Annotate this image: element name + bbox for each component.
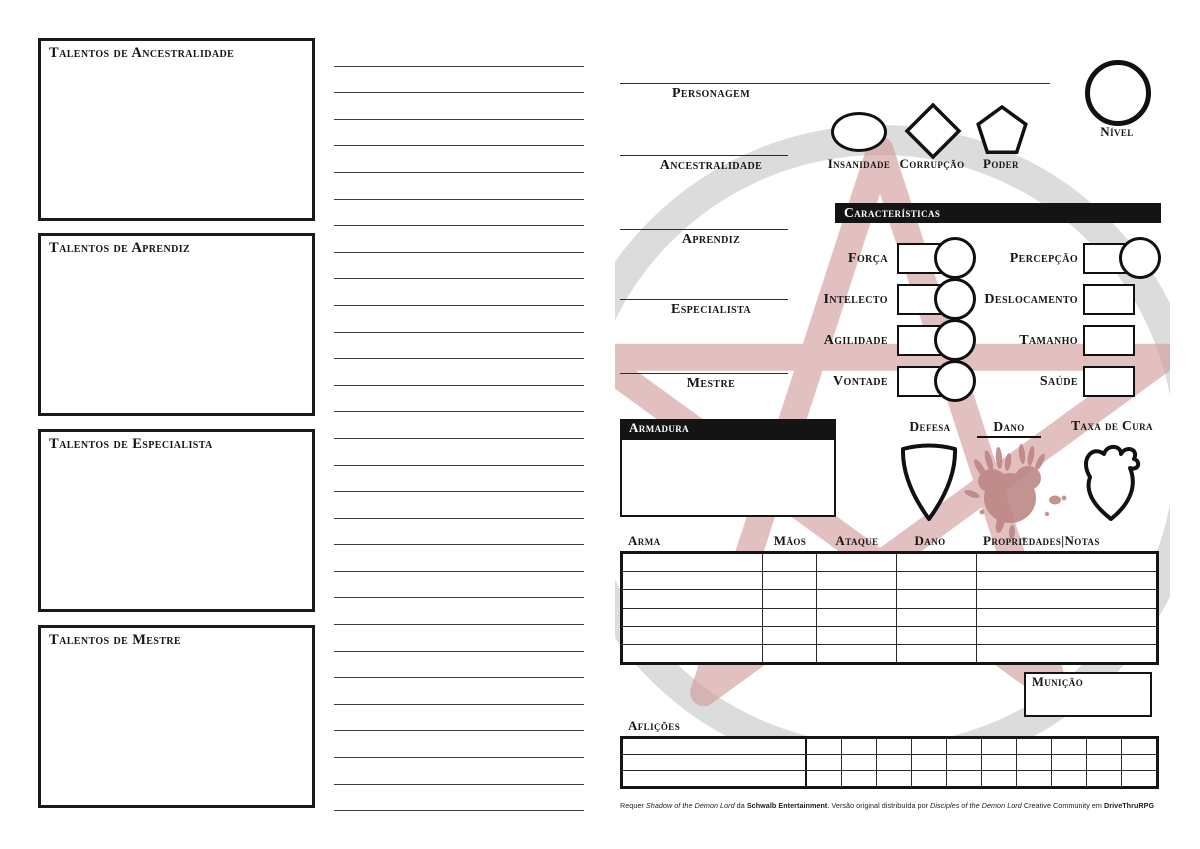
especialista-field-line[interactable] bbox=[620, 299, 788, 300]
aflicao-check-cell[interactable] bbox=[1122, 771, 1156, 786]
blood-splatter-image bbox=[952, 436, 1072, 546]
talentos-ancestralidade-box[interactable]: Talentos de Ancestralidade bbox=[38, 38, 315, 221]
note-line[interactable] bbox=[334, 40, 584, 67]
aflicao-check-cell[interactable] bbox=[1087, 771, 1122, 786]
personagem-field-line[interactable] bbox=[620, 83, 1050, 84]
note-line[interactable] bbox=[334, 519, 584, 546]
weapon-name-cell[interactable] bbox=[623, 590, 763, 607]
aflicao-check-cell[interactable] bbox=[982, 739, 1017, 754]
poder-field[interactable] bbox=[974, 105, 1030, 157]
talentos-especialista-box[interactable]: Talentos de Especialista bbox=[38, 429, 315, 612]
credit-game-title: Shadow of the Demon Lord bbox=[646, 801, 735, 810]
aflicao-check-cell[interactable] bbox=[807, 755, 842, 770]
especialista-label: Especialista bbox=[623, 303, 799, 318]
weapon-hands-cell[interactable] bbox=[763, 572, 817, 589]
aflicao-check-cell[interactable] bbox=[1017, 739, 1052, 754]
weapon-damage-cell[interactable] bbox=[897, 609, 977, 626]
note-line[interactable] bbox=[334, 120, 584, 147]
aflicao-check-cell[interactable] bbox=[877, 739, 912, 754]
weapon-row bbox=[623, 590, 1156, 608]
note-line[interactable] bbox=[334, 678, 584, 705]
intelecto-modifier-circle[interactable] bbox=[934, 278, 976, 320]
note-line[interactable] bbox=[334, 93, 584, 120]
note-line[interactable] bbox=[334, 492, 584, 519]
armadura-label: Armadura bbox=[620, 419, 836, 436]
note-line[interactable] bbox=[334, 439, 584, 466]
agilidade-label: Agilidade bbox=[766, 325, 888, 356]
note-line[interactable] bbox=[334, 731, 584, 758]
aflicao-name-cell[interactable] bbox=[623, 771, 807, 786]
aflicao-row bbox=[623, 755, 1156, 771]
note-line[interactable] bbox=[334, 146, 584, 173]
aflicao-check-cell[interactable] bbox=[1122, 755, 1156, 770]
weapons-table bbox=[620, 551, 1159, 665]
aflicao-check-cell[interactable] bbox=[947, 771, 982, 786]
weapon-hands-cell[interactable] bbox=[763, 645, 817, 662]
aflicao-check-cell[interactable] bbox=[912, 739, 947, 754]
weapon-name-cell[interactable] bbox=[623, 572, 763, 589]
note-line[interactable] bbox=[334, 386, 584, 413]
note-line[interactable] bbox=[334, 572, 584, 599]
aflicao-check-cell[interactable] bbox=[947, 739, 982, 754]
weapon-attack-cell[interactable] bbox=[817, 645, 897, 662]
weapon-damage-cell[interactable] bbox=[897, 590, 977, 607]
weapon-properties-cell[interactable] bbox=[977, 609, 1156, 626]
taxa-de-cura-heart-field[interactable] bbox=[1077, 441, 1149, 525]
aflicoes-label: Aflições bbox=[628, 719, 680, 733]
weapon-row bbox=[623, 627, 1156, 645]
weapon-attack-cell[interactable] bbox=[817, 627, 897, 644]
note-line[interactable] bbox=[334, 279, 584, 306]
aflicao-name-cell[interactable] bbox=[623, 739, 807, 754]
credit-community: Disciples of the Demon Lord bbox=[930, 801, 1022, 810]
weapon-hands-cell[interactable] bbox=[763, 590, 817, 607]
aflicao-check-cell[interactable] bbox=[1087, 755, 1122, 770]
deslocamento-box[interactable] bbox=[1083, 284, 1135, 315]
weapon-properties-cell[interactable] bbox=[977, 554, 1156, 571]
mestre-label: Mestre bbox=[623, 377, 799, 392]
note-line[interactable] bbox=[334, 758, 584, 785]
weapon-name-cell[interactable] bbox=[623, 554, 763, 571]
note-line[interactable] bbox=[334, 253, 584, 280]
weapon-attack-cell[interactable] bbox=[817, 590, 897, 607]
talentos-ancestralidade-label: Talentos de Ancestralidade bbox=[41, 41, 312, 61]
aflicao-check-cell[interactable] bbox=[982, 755, 1017, 770]
weapon-properties-cell[interactable] bbox=[977, 572, 1156, 589]
note-line[interactable] bbox=[334, 359, 584, 386]
weapon-damage-cell[interactable] bbox=[897, 554, 977, 571]
weapon-attack-cell[interactable] bbox=[817, 572, 897, 589]
aflicao-check-cell[interactable] bbox=[912, 771, 947, 786]
credit-store: DriveThruRPG bbox=[1104, 801, 1154, 810]
aflicao-check-cell[interactable] bbox=[877, 771, 912, 786]
aflicao-check-cell[interactable] bbox=[1122, 739, 1156, 754]
note-line[interactable] bbox=[334, 785, 584, 812]
weapon-properties-cell[interactable] bbox=[977, 627, 1156, 644]
aflicao-check-cell[interactable] bbox=[842, 755, 877, 770]
talentos-aprendiz-box[interactable]: Talentos de Aprendiz bbox=[38, 233, 315, 416]
weapon-hands-cell[interactable] bbox=[763, 554, 817, 571]
weapon-hands-cell[interactable] bbox=[763, 627, 817, 644]
note-line[interactable] bbox=[334, 306, 584, 333]
talentos-mestre-box[interactable]: Talentos de Mestre bbox=[38, 625, 315, 808]
aflicao-check-cell[interactable] bbox=[807, 739, 842, 754]
note-line[interactable] bbox=[334, 705, 584, 732]
weapon-damage-cell[interactable] bbox=[897, 645, 977, 662]
aflicao-check-cell[interactable] bbox=[842, 739, 877, 754]
nivel-label: Nível bbox=[1072, 125, 1162, 139]
forca-modifier-circle[interactable] bbox=[934, 237, 976, 279]
weapon-name-cell[interactable] bbox=[623, 645, 763, 662]
note-line[interactable] bbox=[334, 173, 584, 200]
aflicao-check-cell[interactable] bbox=[1017, 755, 1052, 770]
percepcao-modifier-circle[interactable] bbox=[1119, 237, 1161, 279]
note-line[interactable] bbox=[334, 412, 584, 439]
armadura-header-bar: Armadura bbox=[620, 419, 836, 438]
aflicao-name-cell[interactable] bbox=[623, 755, 807, 770]
corrupcao-field[interactable] bbox=[904, 102, 962, 160]
aprendiz-field-line[interactable] bbox=[620, 229, 788, 230]
ataque-header: Ataque bbox=[822, 534, 892, 548]
defesa-label: Defesa bbox=[885, 420, 975, 434]
weapon-attack-cell[interactable] bbox=[817, 554, 897, 571]
aflicao-check-cell[interactable] bbox=[982, 771, 1017, 786]
aflicao-check-cell[interactable] bbox=[1052, 771, 1087, 786]
insanidade-field[interactable] bbox=[831, 112, 887, 152]
weapon-damage-cell[interactable] bbox=[897, 572, 977, 589]
aflicao-check-cell[interactable] bbox=[807, 771, 842, 786]
aflicao-check-cell[interactable] bbox=[877, 755, 912, 770]
personagem-label: Personagem bbox=[623, 87, 799, 102]
aflicao-check-cell[interactable] bbox=[912, 755, 947, 770]
armadura-box[interactable] bbox=[620, 438, 836, 517]
note-line[interactable] bbox=[334, 545, 584, 572]
credit-text: Requer bbox=[620, 801, 646, 810]
poder-label: Poder bbox=[956, 157, 1046, 171]
arma-header: Arma bbox=[628, 534, 660, 548]
aflicao-row bbox=[623, 771, 1156, 786]
maos-header: Mãos bbox=[760, 534, 820, 548]
saude-box[interactable] bbox=[1083, 366, 1135, 397]
weapon-row bbox=[623, 609, 1156, 627]
note-line[interactable] bbox=[334, 333, 584, 360]
insanidade-label: Insanidade bbox=[814, 157, 904, 171]
character-sheet: Talentos de Ancestralidade Talentos de A… bbox=[0, 0, 1200, 849]
mestre-field-line[interactable] bbox=[620, 373, 788, 374]
talentos-aprendiz-label: Talentos de Aprendiz bbox=[41, 236, 312, 256]
weapon-name-cell[interactable] bbox=[623, 609, 763, 626]
note-line[interactable] bbox=[334, 652, 584, 679]
aflicao-check-cell[interactable] bbox=[842, 771, 877, 786]
note-line[interactable] bbox=[334, 625, 584, 652]
note-line[interactable] bbox=[334, 200, 584, 227]
aflicao-check-cell[interactable] bbox=[1052, 755, 1087, 770]
note-line[interactable] bbox=[334, 598, 584, 625]
vontade-label: Vontade bbox=[766, 366, 888, 397]
talentos-especialista-label: Talentos de Especialista bbox=[41, 432, 312, 452]
weapon-hands-cell[interactable] bbox=[763, 609, 817, 626]
nivel-field[interactable] bbox=[1085, 60, 1151, 126]
aflicao-check-cell[interactable] bbox=[1052, 739, 1087, 754]
aflicao-check-cell[interactable] bbox=[1087, 739, 1122, 754]
vontade-modifier-circle[interactable] bbox=[934, 360, 976, 402]
municao-box[interactable]: Munição bbox=[1024, 672, 1152, 717]
aflicao-row bbox=[623, 739, 1156, 755]
municao-label: Munição bbox=[1026, 674, 1150, 689]
weapon-row bbox=[623, 645, 1156, 662]
tamanho-box[interactable] bbox=[1083, 325, 1135, 356]
aflicao-check-cell[interactable] bbox=[947, 755, 982, 770]
note-line[interactable] bbox=[334, 226, 584, 253]
note-line[interactable] bbox=[334, 466, 584, 493]
talentos-mestre-label: Talentos de Mestre bbox=[41, 628, 312, 648]
aflicao-check-cell[interactable] bbox=[1017, 771, 1052, 786]
agilidade-modifier-circle[interactable] bbox=[934, 319, 976, 361]
weapon-name-cell[interactable] bbox=[623, 627, 763, 644]
weapon-row bbox=[623, 572, 1156, 590]
ancestralidade-field-line[interactable] bbox=[620, 155, 788, 156]
weapon-row bbox=[623, 554, 1156, 572]
weapon-attack-cell[interactable] bbox=[817, 609, 897, 626]
weapon-damage-cell[interactable] bbox=[897, 627, 977, 644]
ancestralidade-label: Ancestralidade bbox=[623, 159, 799, 174]
aprendiz-label: Aprendiz bbox=[623, 233, 799, 248]
weapon-properties-cell[interactable] bbox=[977, 645, 1156, 662]
caracteristicas-title: Características bbox=[835, 203, 1161, 221]
note-line[interactable] bbox=[334, 67, 584, 94]
aflicoes-table bbox=[620, 736, 1159, 789]
taxa-de-cura-label: Taxa de Cura bbox=[1057, 419, 1167, 433]
credit-publisher: Schwalb Entertainment bbox=[747, 801, 828, 810]
credit-line: Requer Shadow of the Demon Lord da Schwa… bbox=[620, 801, 1165, 810]
caracteristicas-header-bar: Características bbox=[835, 203, 1161, 223]
weapon-properties-cell[interactable] bbox=[977, 590, 1156, 607]
forca-label: Força bbox=[766, 243, 888, 274]
notes-lines bbox=[334, 40, 584, 811]
